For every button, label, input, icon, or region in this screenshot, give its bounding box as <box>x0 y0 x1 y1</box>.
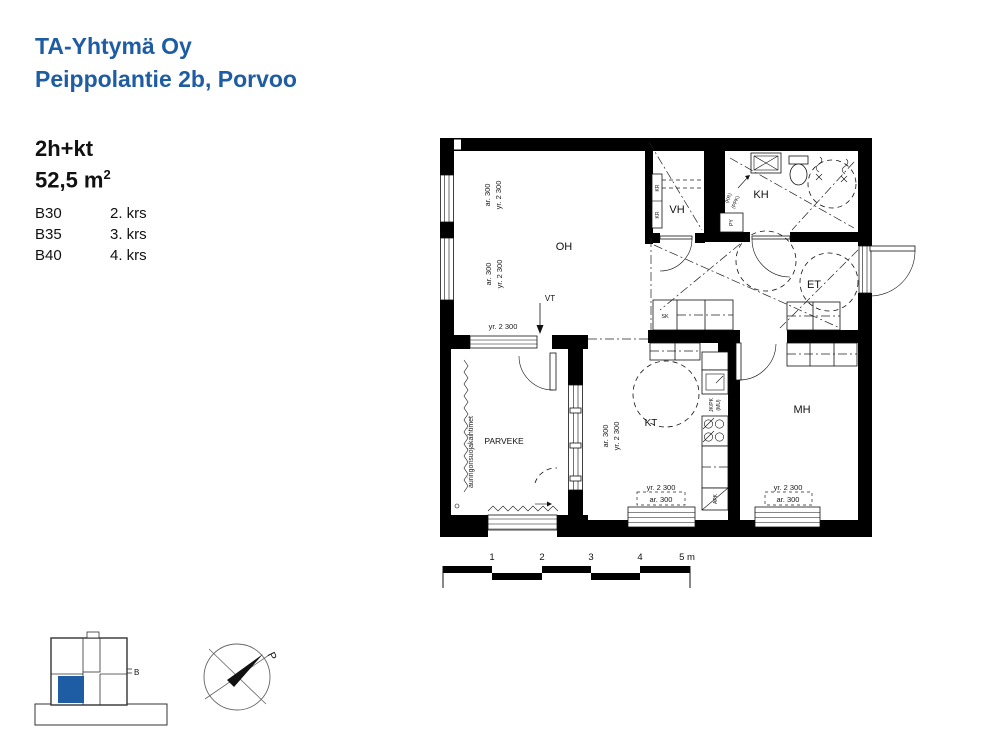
window-oh-upper <box>441 175 454 222</box>
apartment-area: 52,5 m2 <box>35 167 111 193</box>
balcony-wall-glazing <box>470 336 537 348</box>
washer-reservation <box>751 153 781 173</box>
room-label-et: ET <box>807 279 821 291</box>
room-label-mh: MH <box>793 404 810 416</box>
stove <box>702 416 728 446</box>
keyplan-compass: B P <box>30 625 310 740</box>
scale-tick-label: 4 <box>637 552 642 563</box>
unit-row: B302. krs <box>35 205 147 226</box>
sk-closet-label: SK <box>661 314 669 320</box>
scale-tick-label: 1 <box>489 552 494 563</box>
highlighted-unit <box>58 676 84 703</box>
balcony-door <box>519 353 556 390</box>
dim-ar300: ar. 300 <box>777 495 800 504</box>
dim-ar300: ar. 300 <box>484 263 493 286</box>
unit-id: B40 <box>35 247 110 264</box>
dim-ar300: ar. 300 <box>650 495 673 504</box>
vh-rack: KR KR <box>652 174 662 228</box>
room-label-vh: VH <box>669 204 684 216</box>
unit-row: B353. krs <box>35 226 147 247</box>
unit-floor: 3. krs <box>110 226 147 243</box>
area-exponent: 2 <box>104 167 111 182</box>
apk-label: APK <box>713 493 719 504</box>
vh-door <box>660 236 692 271</box>
mh-door <box>736 343 776 380</box>
vt-label: VT <box>545 294 555 303</box>
balcony-railing <box>488 515 557 530</box>
vt-marker: VT <box>537 294 556 334</box>
balcony-side-glazing <box>569 385 583 490</box>
toilet <box>789 156 808 185</box>
laundry-cabinet: PY <box>720 213 743 232</box>
window-oh-lower <box>441 238 454 300</box>
dim-yr2300: yr. 2 300 <box>612 422 621 451</box>
room-label-oh: OH <box>556 241 573 253</box>
blinds-note: auringonsuojakaihtimet <box>468 416 475 488</box>
north-label: P <box>265 650 279 662</box>
kr-ppk-reservation: (KR) (PPK) <box>724 175 750 210</box>
kh-door <box>752 236 790 277</box>
unit-id: B35 <box>35 226 110 243</box>
key-plan: B <box>35 632 167 725</box>
microwave-label: (MU) <box>716 399 722 410</box>
py-label: PY <box>729 219 735 226</box>
kt-cabinets <box>650 343 700 360</box>
unit-list: B302. krs B353. krs B404. krs <box>35 205 147 268</box>
windows <box>441 175 821 530</box>
kr-label: KR <box>655 211 661 218</box>
room-label-kh: KH <box>753 189 768 201</box>
dim-ar300: ar. 300 <box>483 184 492 207</box>
hall-cabinets: SK <box>653 300 840 330</box>
dim-yr2300: yr. 2 300 <box>774 483 803 492</box>
street-address: Peippolantie 2b, Porvoo <box>35 63 297 96</box>
window-kt <box>628 507 695 527</box>
shower-heads <box>816 157 848 182</box>
kt-counter: JK/PK (MU) APK <box>702 352 728 510</box>
compass: P <box>204 644 279 710</box>
scale-tick-label: 3 <box>588 552 593 563</box>
room-label-parveke: PARVEKE <box>484 436 524 446</box>
floorplan-page: TA-Yhtymä Oy Peippolantie 2b, Porvoo 2h+… <box>0 0 1000 750</box>
scale-tick-label: 5 m <box>679 552 695 563</box>
mh-wardrobes <box>787 343 857 366</box>
kitchen-sink <box>702 370 728 394</box>
entrance-door <box>859 246 915 296</box>
scale-bar: 1 2 3 4 5 m <box>443 552 695 588</box>
scale-tick-label: 2 <box>539 552 544 563</box>
dim-yr2300: yr. 2 300 <box>489 322 518 331</box>
unit-row: B404. krs <box>35 247 147 268</box>
unit-id: B30 <box>35 205 110 222</box>
dim-yr2300: yr. 2 300 <box>647 483 676 492</box>
building-label: B <box>134 668 139 677</box>
dim-yr2300: yr. 2 300 <box>495 260 504 289</box>
header: TA-Yhtymä Oy Peippolantie 2b, Porvoo <box>35 30 297 96</box>
company-name: TA-Yhtymä Oy <box>35 30 297 63</box>
unit-floor: 4. krs <box>110 247 147 264</box>
apartment-type: 2h+kt <box>35 136 93 162</box>
kr-label: KR <box>655 184 661 191</box>
unit-floor: 2. krs <box>110 205 147 222</box>
dishwasher-reservation: APK <box>702 488 728 510</box>
floor-plan: KR KR SK <box>440 138 1000 608</box>
room-label-kt: KT <box>645 418 658 429</box>
dim-ar300: ar. 300 <box>601 425 610 448</box>
window-mh <box>755 507 820 527</box>
dim-yr2300: yr. 2 300 <box>494 181 503 210</box>
north-arrow-icon <box>227 654 263 687</box>
fridge-label: JK/PK <box>709 397 715 412</box>
